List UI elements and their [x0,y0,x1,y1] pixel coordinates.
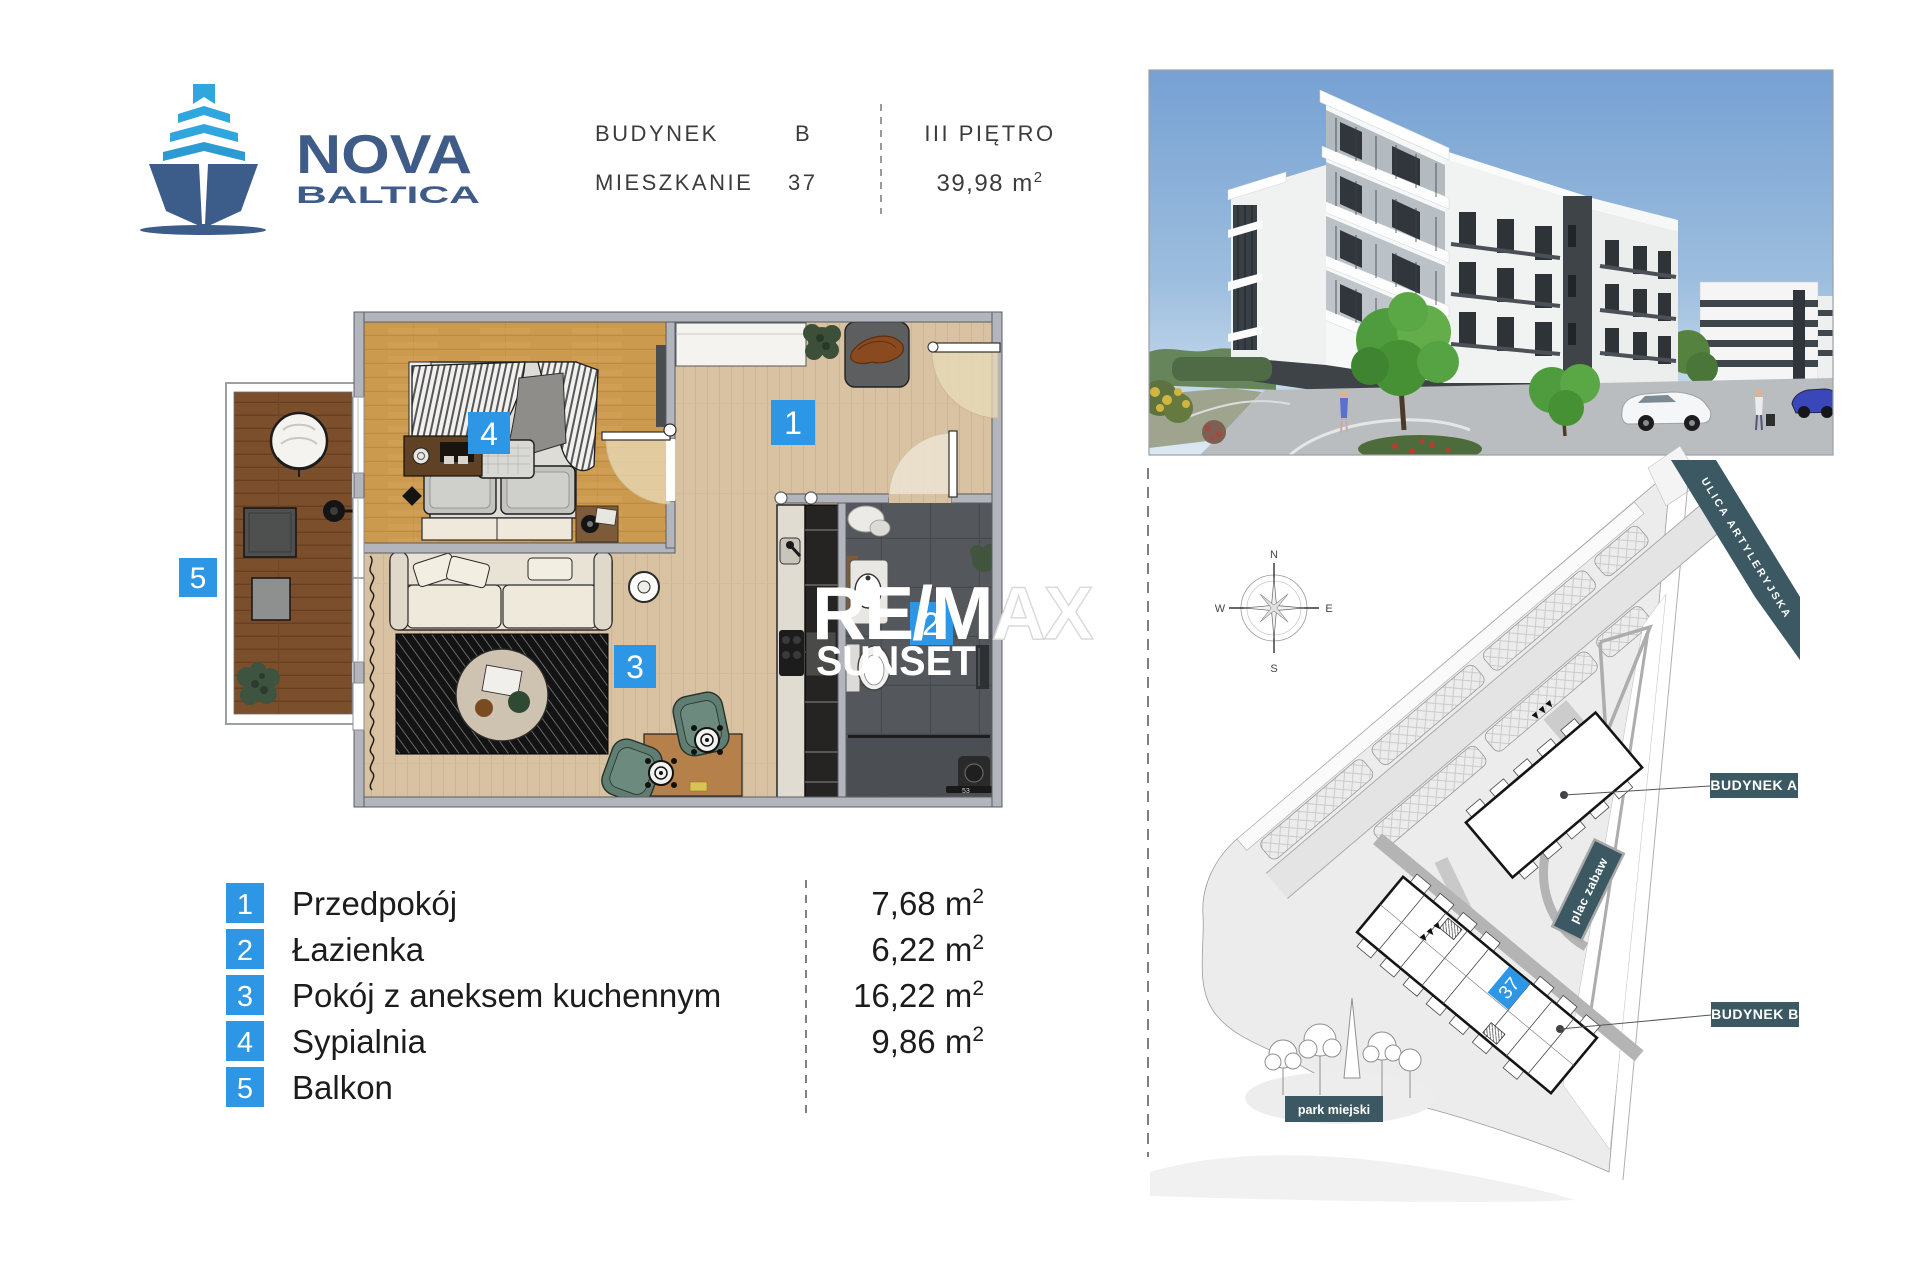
svg-text:4: 4 [480,416,498,452]
svg-text:5: 5 [237,1073,253,1105]
svg-text:37: 37 [788,170,817,195]
svg-text:53: 53 [962,788,970,795]
svg-text:S: S [1270,663,1277,675]
svg-text:Sypialnia: Sypialnia [292,1023,427,1060]
svg-text:NOVA: NOVA [296,123,472,185]
svg-text:1: 1 [784,405,802,441]
svg-text:SUNSET: SUNSET [816,637,976,684]
svg-text:Łazienka: Łazienka [292,931,425,968]
svg-text:2: 2 [237,935,253,967]
svg-text:BUDYNEK: BUDYNEK [595,121,719,146]
svg-text:1: 1 [237,889,253,921]
svg-text:39,98 m2: 39,98 m2 [936,169,1043,197]
svg-text:III PIĘTRO: III PIĘTRO [924,121,1055,146]
svg-text:N: N [1270,549,1278,561]
svg-text:5: 5 [190,562,207,595]
svg-text:B: B [795,121,812,146]
svg-text:E: E [1325,603,1332,615]
svg-text:9,86 m2: 9,86 m2 [871,1023,984,1060]
svg-text:BUDYNEK B: BUDYNEK B [1711,1006,1799,1022]
svg-text:MIESZKANIE: MIESZKANIE [595,170,753,195]
svg-text:BALTICA: BALTICA [296,182,480,209]
svg-text:park miejski: park miejski [1298,1103,1370,1117]
svg-text:BUDYNEK A: BUDYNEK A [1710,777,1797,793]
svg-text:3: 3 [626,649,644,685]
svg-text:Przedpokój: Przedpokój [292,885,457,922]
svg-text:3: 3 [237,981,253,1013]
svg-text:4: 4 [237,1027,253,1059]
svg-text:6,22 m2: 6,22 m2 [871,931,984,968]
svg-text:W: W [1215,603,1226,615]
svg-text:Pokój z aneksem kuchennym: Pokój z aneksem kuchennym [292,977,721,1014]
svg-text:Balkon: Balkon [292,1069,393,1106]
svg-text:16,22 m2: 16,22 m2 [853,977,984,1014]
svg-text:7,68 m2: 7,68 m2 [871,885,984,922]
